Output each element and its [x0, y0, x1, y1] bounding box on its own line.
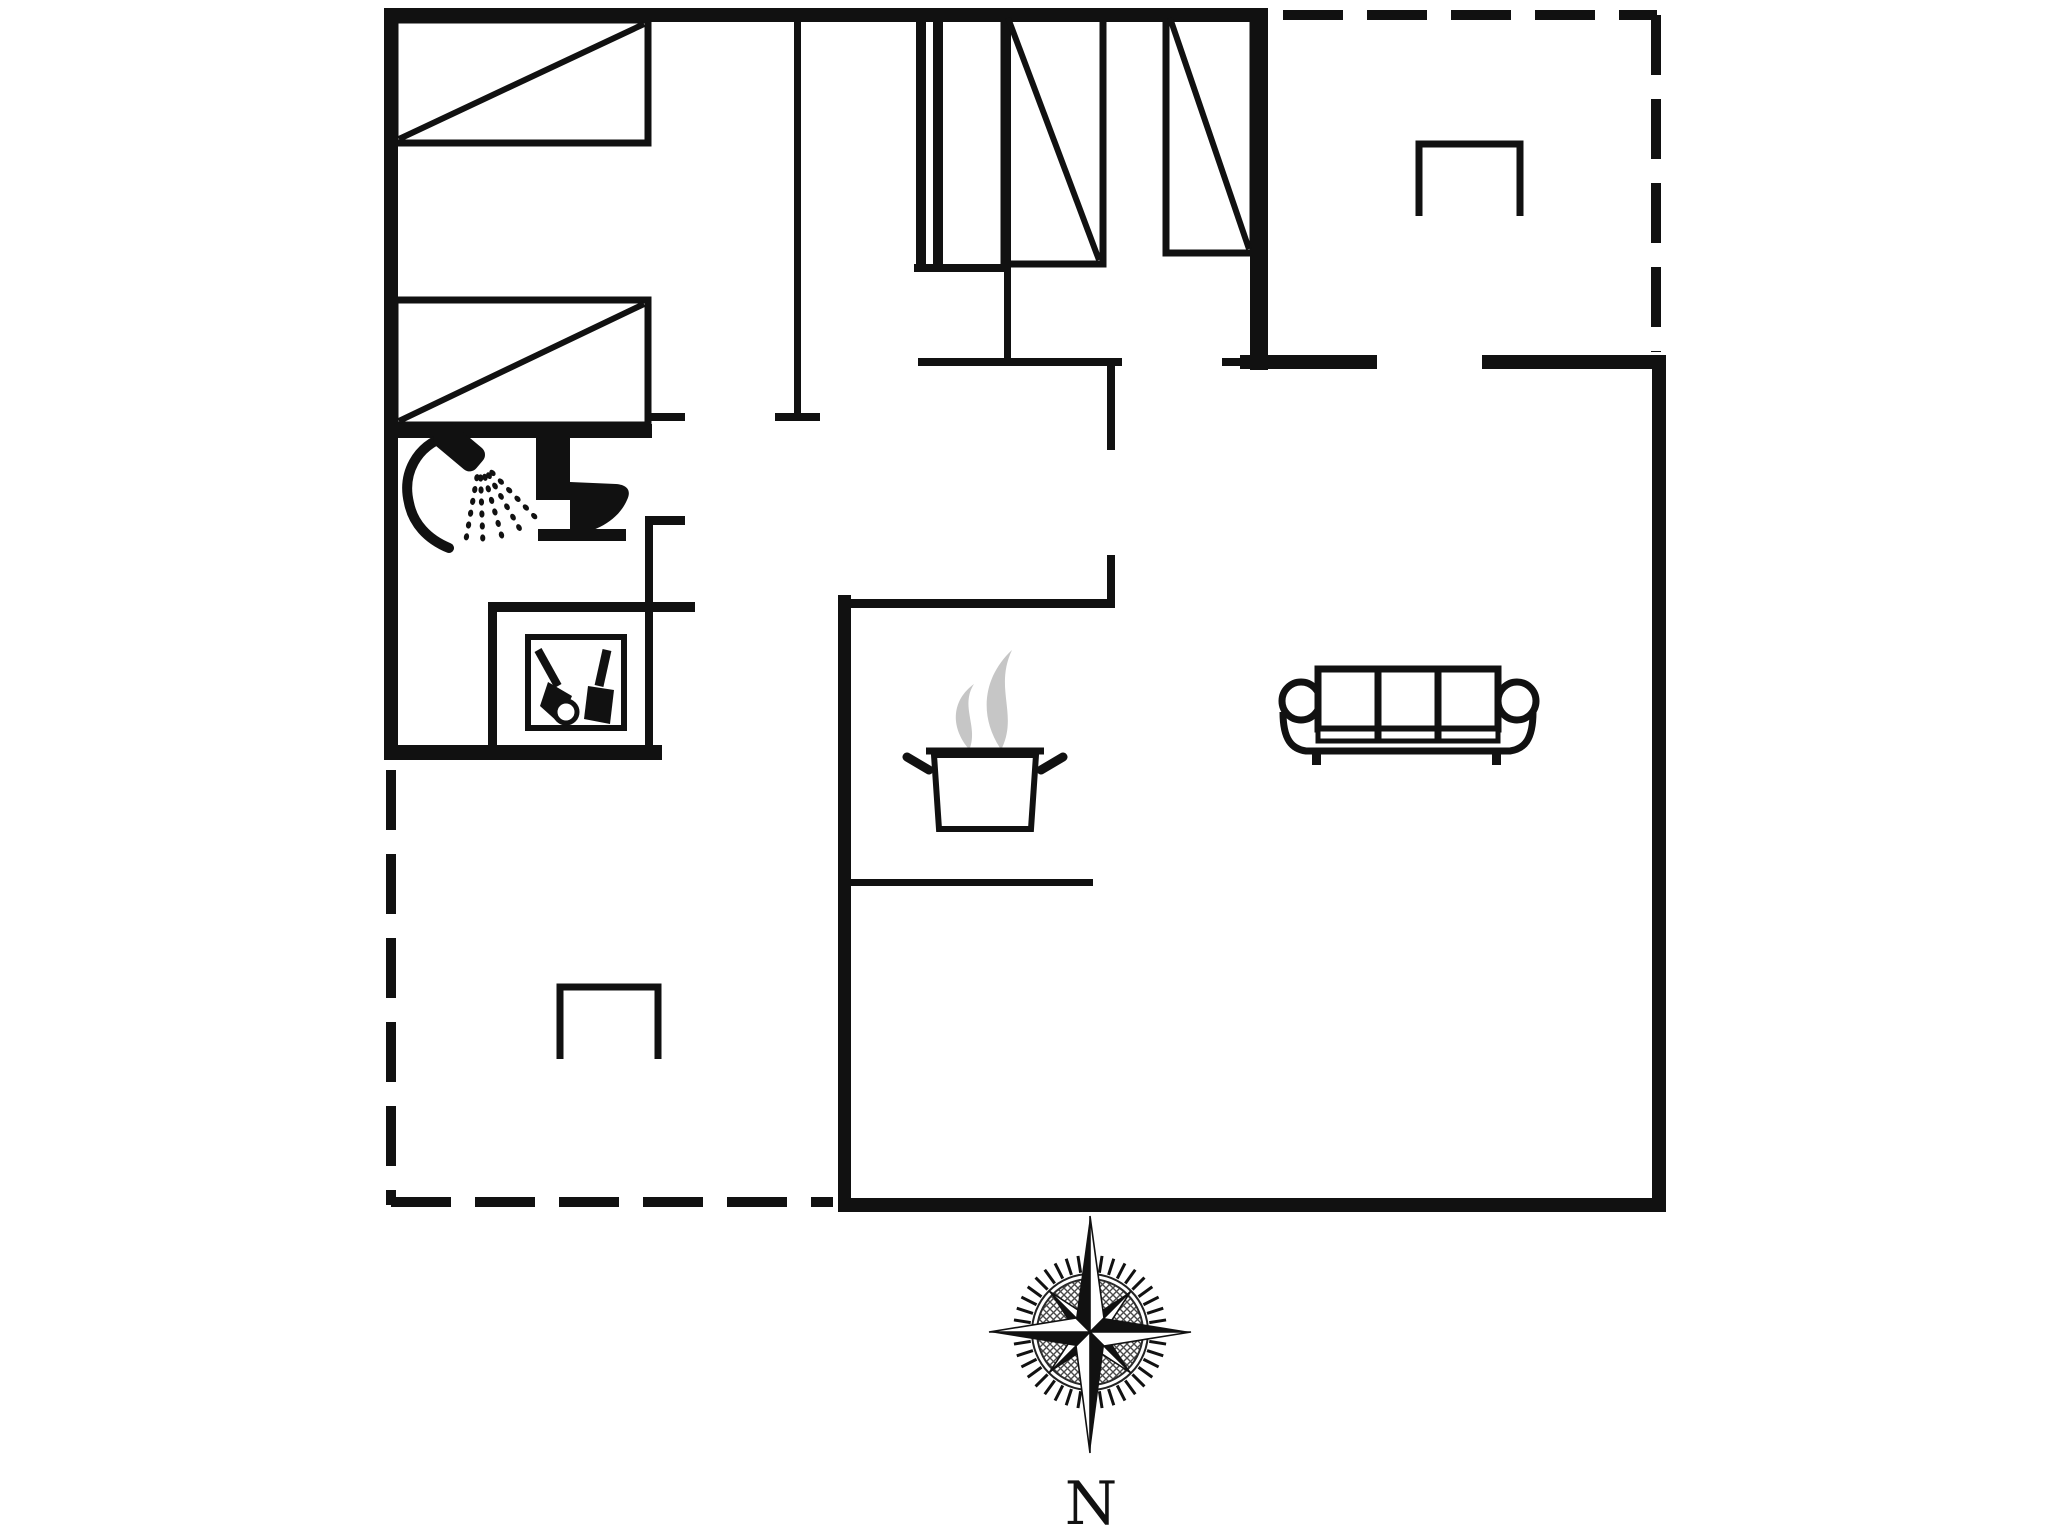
bathroom-east-wall — [645, 518, 653, 750]
hall-door-jamb — [1222, 358, 1240, 366]
shower-spray-dot — [480, 522, 485, 529]
compass-tick — [1014, 1341, 1031, 1344]
terrace-furniture-bottom — [560, 987, 658, 1059]
wardrobe-2-diagonal — [1170, 18, 1249, 249]
compass-tick — [1045, 1270, 1055, 1284]
living-east-wall — [1652, 355, 1666, 1212]
shower-spray-dot — [505, 486, 514, 495]
hall-west-wall-lower — [1107, 555, 1115, 606]
sofa-seat-band — [1318, 729, 1498, 741]
sofa-back — [1318, 669, 1498, 729]
compass-tick — [1066, 1389, 1071, 1405]
terrace-furniture-top — [1419, 144, 1520, 216]
hall-north-wall — [918, 358, 1122, 366]
shower-spray-dot — [530, 512, 539, 521]
shower-spray-dot — [513, 494, 522, 503]
compass-tick — [1147, 1351, 1163, 1356]
living-north-wall-west — [1240, 355, 1377, 369]
closet-line-a — [916, 12, 926, 272]
sofa-icon — [1282, 669, 1536, 765]
compass-tick — [1125, 1270, 1135, 1284]
compass-tick — [1066, 1259, 1071, 1275]
bed-2-diagonal — [399, 304, 644, 421]
compass-tick — [1055, 1385, 1063, 1400]
shower-hose — [407, 436, 449, 548]
compass-tick — [1014, 1320, 1031, 1323]
compass-tick — [1045, 1381, 1055, 1395]
compass-tick — [1147, 1308, 1163, 1313]
compass-tick — [1139, 1367, 1153, 1377]
brush-handle — [538, 650, 558, 686]
compass-tick — [1028, 1287, 1042, 1297]
compass-tick — [1143, 1297, 1158, 1305]
shower-spray-dot — [463, 533, 469, 541]
utility-niche-west-wall — [488, 602, 497, 752]
pot-handle — [907, 757, 929, 770]
steam-icon — [956, 684, 974, 748]
bed-1-diagonal — [399, 24, 644, 139]
shower-spray-dot — [479, 498, 484, 505]
stove-pot-icon — [907, 650, 1063, 829]
utility-niche-north-wall — [488, 602, 695, 612]
kitchen-north-wall — [845, 599, 1115, 608]
ring-icon — [555, 701, 577, 723]
compass-tick — [1143, 1359, 1158, 1367]
shower-spray-dot — [480, 534, 485, 541]
icons-layer — [407, 419, 1536, 829]
wardrobe-1-diagonal — [1008, 18, 1099, 260]
compass-tick — [1036, 1374, 1048, 1386]
shower-spray-dot — [503, 502, 511, 511]
utility-cabinet-icon — [538, 650, 614, 724]
pot-handle — [1041, 757, 1063, 770]
shower-spray-dot — [515, 523, 523, 532]
south-wall — [838, 1198, 1666, 1212]
bathroom-door-jamb — [645, 516, 685, 525]
north-label: N — [1058, 1474, 1124, 1534]
compass-tick — [1021, 1297, 1036, 1305]
toilet-icon — [536, 426, 629, 541]
kitchen-counter-edge — [845, 879, 1093, 886]
compass-tick — [1021, 1359, 1036, 1367]
shower-spray-dot — [479, 510, 484, 517]
bottle-neck — [599, 650, 607, 686]
floor-plan — [0, 0, 2048, 1536]
shower-spray-dot — [521, 503, 530, 512]
compass-tick — [1132, 1374, 1144, 1386]
shower-spray-dot — [491, 482, 499, 491]
bathroom-south-wall — [384, 745, 662, 760]
compass-rose — [989, 1216, 1191, 1453]
walls-layer — [384, 8, 1666, 1212]
toilet-button — [545, 426, 556, 434]
compass-tick — [1132, 1278, 1144, 1290]
sofa-arm — [1282, 682, 1320, 720]
pot-body — [934, 755, 1036, 829]
steam-icon — [987, 650, 1012, 748]
compass-tick — [1078, 1391, 1081, 1408]
compass-tick — [1149, 1341, 1166, 1344]
compass-tick — [1109, 1389, 1114, 1405]
compass-tick — [1117, 1263, 1125, 1278]
shower-spray-dot — [488, 496, 495, 504]
sofa-leg — [1492, 751, 1501, 765]
shower-spray-dot — [509, 513, 517, 522]
bedroom-partition-wall — [794, 14, 801, 416]
shower-spray-dot — [478, 486, 483, 493]
sofa-leg — [1312, 751, 1321, 765]
bedroom-partition-cap — [775, 413, 820, 421]
shower-spray-dot — [485, 485, 492, 493]
compass-tick — [1099, 1256, 1102, 1273]
compass-tick — [1139, 1287, 1153, 1297]
toilet-base — [538, 529, 626, 541]
shower-spray-dot — [465, 521, 471, 529]
toilet-tank — [536, 434, 570, 500]
bottle-body — [584, 686, 614, 724]
shower-spray-dot — [470, 497, 476, 505]
compass-tick — [1117, 1385, 1125, 1400]
compass-tick — [1125, 1381, 1135, 1395]
compass-tick — [1149, 1320, 1166, 1323]
closet-bottom — [914, 264, 1008, 272]
compass-tick — [1099, 1391, 1102, 1408]
shower-spray-dot — [496, 477, 505, 486]
compass-tick — [1055, 1263, 1063, 1278]
compass-tick — [1017, 1351, 1033, 1356]
compass-tick — [1017, 1308, 1033, 1313]
compass-tick — [1109, 1259, 1114, 1275]
closet-line-b — [933, 12, 943, 272]
shower-spray-dot — [495, 519, 502, 527]
shower-spray-dot — [491, 508, 498, 516]
shower-icon — [407, 419, 538, 548]
toilet-bowl — [570, 482, 629, 535]
shower-spray-dot — [497, 492, 505, 501]
living-north-wall-east — [1482, 355, 1666, 369]
compass-tick — [1078, 1256, 1081, 1273]
shower-spray-dot — [467, 509, 473, 517]
kitchen-west-wall — [838, 595, 851, 1210]
compass-tick — [1036, 1278, 1048, 1290]
shower-spray-dot — [498, 531, 505, 539]
compass-tick — [1028, 1367, 1042, 1377]
shower-spray-dot — [472, 486, 478, 494]
floor-plan-page: N — [0, 0, 2048, 1536]
hall-west-wall-upper — [1107, 358, 1115, 450]
